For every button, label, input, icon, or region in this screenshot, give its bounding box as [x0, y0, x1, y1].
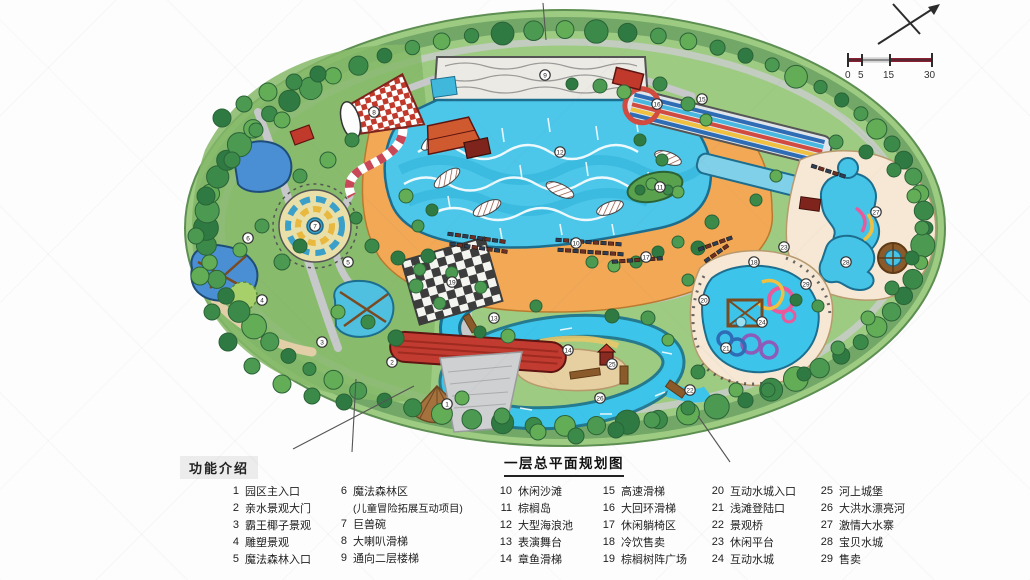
svg-text:7: 7 [313, 223, 317, 230]
scale-tick-5: 5 [858, 70, 864, 81]
svg-text:25: 25 [608, 361, 616, 368]
map-marker-22: 22 [685, 385, 695, 395]
map-marker-18: 18 [749, 257, 759, 267]
svg-text:23: 23 [780, 244, 788, 251]
legend-item-23: 23休闲平台 [707, 534, 796, 551]
svg-text:20: 20 [700, 297, 708, 304]
map-marker-29: 29 [801, 279, 811, 289]
legend-column-3: 10休闲沙滩11棕榈岛12大型海浪池13表演舞台14章鱼滑梯 [495, 482, 573, 568]
svg-text:14: 14 [564, 347, 572, 354]
map-marker-10: 10 [571, 238, 581, 248]
legend-item-25: 25河上城堡 [816, 482, 905, 499]
map-marker-17: 17 [641, 252, 651, 262]
legend-item-17: 17休闲躺椅区 [598, 516, 687, 533]
scale-tick-30: 30 [924, 70, 936, 81]
legend-item-16: 16大回环滑梯 [598, 499, 687, 516]
map-marker-8: 8 [369, 107, 379, 117]
svg-text:18: 18 [750, 259, 758, 266]
svg-text:1: 1 [445, 401, 449, 408]
legend-item-11: 11棕榈岛 [495, 499, 573, 516]
legend-item-note: (儿童冒险拓展互动项目) [330, 499, 463, 515]
legend-item-18: 18冷饮售卖 [598, 534, 687, 551]
scale-tick-15: 15 [883, 70, 895, 81]
legend-item-24: 24互动水城 [707, 551, 796, 568]
legend-item-4: 4雕塑景观 [222, 534, 311, 551]
legend-item-9: 9通向二层楼梯 [330, 550, 463, 567]
legend-heading: 功能介绍 [180, 456, 258, 479]
svg-text:6: 6 [246, 235, 250, 242]
legend-item-26: 26大洪水漂亮河 [816, 499, 905, 516]
legend-item-15: 15高速滑梯 [598, 482, 687, 499]
svg-text:29: 29 [802, 281, 810, 288]
legend-item-1: 1园区主入口 [222, 482, 311, 499]
legend-item-8: 8大喇叭滑梯 [330, 532, 463, 549]
map-marker-27: 27 [871, 207, 881, 217]
map-marker-19: 19 [447, 277, 457, 287]
legend-column-2: 6魔法森林区(儿童冒险拓展互动项目)7巨兽碗8大喇叭滑梯9通向二层楼梯 [330, 482, 463, 567]
svg-text:12: 12 [556, 149, 564, 156]
page: 1234567891011121314151617181920212223242… [0, 0, 1030, 580]
svg-text:8: 8 [372, 109, 376, 116]
map-marker-15: 15 [697, 94, 707, 104]
legend-item-27: 27激情大水寨 [816, 516, 905, 533]
map-marker-16: 16 [652, 99, 662, 109]
castle-tower [878, 243, 908, 273]
map-marker-3: 3 [317, 337, 327, 347]
legend-item-14: 14章鱼滑梯 [495, 551, 573, 568]
legend-item-29: 29售卖 [816, 551, 905, 568]
legend-item-21: 21浅滩登陆口 [707, 499, 796, 516]
legend-column-1: 1园区主入口2亲水景观大门3霸王椰子景观4雕塑景观5魔法森林入口 [222, 482, 311, 568]
map-marker-7: 7 [310, 221, 320, 231]
map-marker-23: 23 [779, 242, 789, 252]
legend-item-12: 12大型海浪池 [495, 516, 573, 533]
map-marker-12: 12 [555, 147, 565, 157]
legend-item-5: 5魔法森林入口 [222, 551, 311, 568]
map-marker-5: 5 [343, 257, 353, 267]
svg-text:28: 28 [842, 259, 850, 266]
legend-column-5: 20互动水城入口21浅滩登陆口22景观桥23休闲平台24互动水城 [707, 482, 796, 568]
legend-item-6: 6魔法森林区 [330, 482, 463, 499]
map-marker-26: 26 [595, 393, 605, 403]
scale-bar: 0 5 15 30 [845, 53, 936, 81]
svg-text:4: 4 [260, 297, 264, 304]
map-marker-13: 13 [489, 313, 499, 323]
svg-text:21: 21 [722, 345, 730, 352]
map-marker-20: 20 [699, 295, 709, 305]
svg-text:27: 27 [872, 209, 880, 216]
map-marker-21: 21 [721, 343, 731, 353]
map-marker-25: 25 [607, 359, 617, 369]
svg-text:17: 17 [642, 254, 650, 261]
map-marker-1: 1 [442, 399, 452, 409]
legend-item-10: 10休闲沙滩 [495, 482, 573, 499]
svg-text:24: 24 [758, 319, 766, 326]
legend-item-2: 2亲水景观大门 [222, 499, 311, 516]
legend-item-7: 7巨兽碗 [330, 515, 463, 532]
map-marker-6: 6 [243, 233, 253, 243]
svg-text:3: 3 [320, 339, 324, 346]
svg-text:19: 19 [448, 279, 456, 286]
svg-text:22: 22 [686, 387, 694, 394]
svg-text:26: 26 [596, 395, 604, 402]
svg-text:16: 16 [653, 101, 661, 108]
svg-text:5: 5 [346, 259, 350, 266]
map-marker-11: 11 [655, 182, 665, 192]
map-marker-14: 14 [563, 345, 573, 355]
svg-text:10: 10 [572, 240, 580, 247]
legend-column-4: 15高速滑梯16大回环滑梯17休闲躺椅区18冷饮售卖19棕榈树阵广场 [598, 482, 687, 568]
map-marker-24: 24 [757, 317, 767, 327]
svg-text:2: 2 [390, 359, 394, 366]
legend-item-20: 20互动水城入口 [707, 482, 796, 499]
north-arrow-icon [878, 4, 940, 44]
legend-item-19: 19棕榈树阵广场 [598, 551, 687, 568]
map-marker-28: 28 [841, 257, 851, 267]
legend-item-13: 13表演舞台 [495, 534, 573, 551]
svg-text:15: 15 [698, 96, 706, 103]
legend-item-22: 22景观桥 [707, 516, 796, 533]
map-marker-4: 4 [257, 295, 267, 305]
plan-title: 一层总平面规划图 [504, 452, 624, 477]
map-marker-9: 9 [540, 70, 550, 80]
map-marker-2: 2 [387, 357, 397, 367]
legend-column-6: 25河上城堡26大洪水漂亮河27激情大水寨28宝贝水城29售卖 [816, 482, 905, 568]
scale-tick-0: 0 [845, 70, 851, 81]
svg-text:9: 9 [543, 72, 547, 79]
legend-item-3: 3霸王椰子景观 [222, 516, 311, 533]
svg-text:11: 11 [657, 184, 664, 191]
legend-item-28: 28宝贝水城 [816, 534, 905, 551]
svg-text:13: 13 [490, 315, 498, 322]
